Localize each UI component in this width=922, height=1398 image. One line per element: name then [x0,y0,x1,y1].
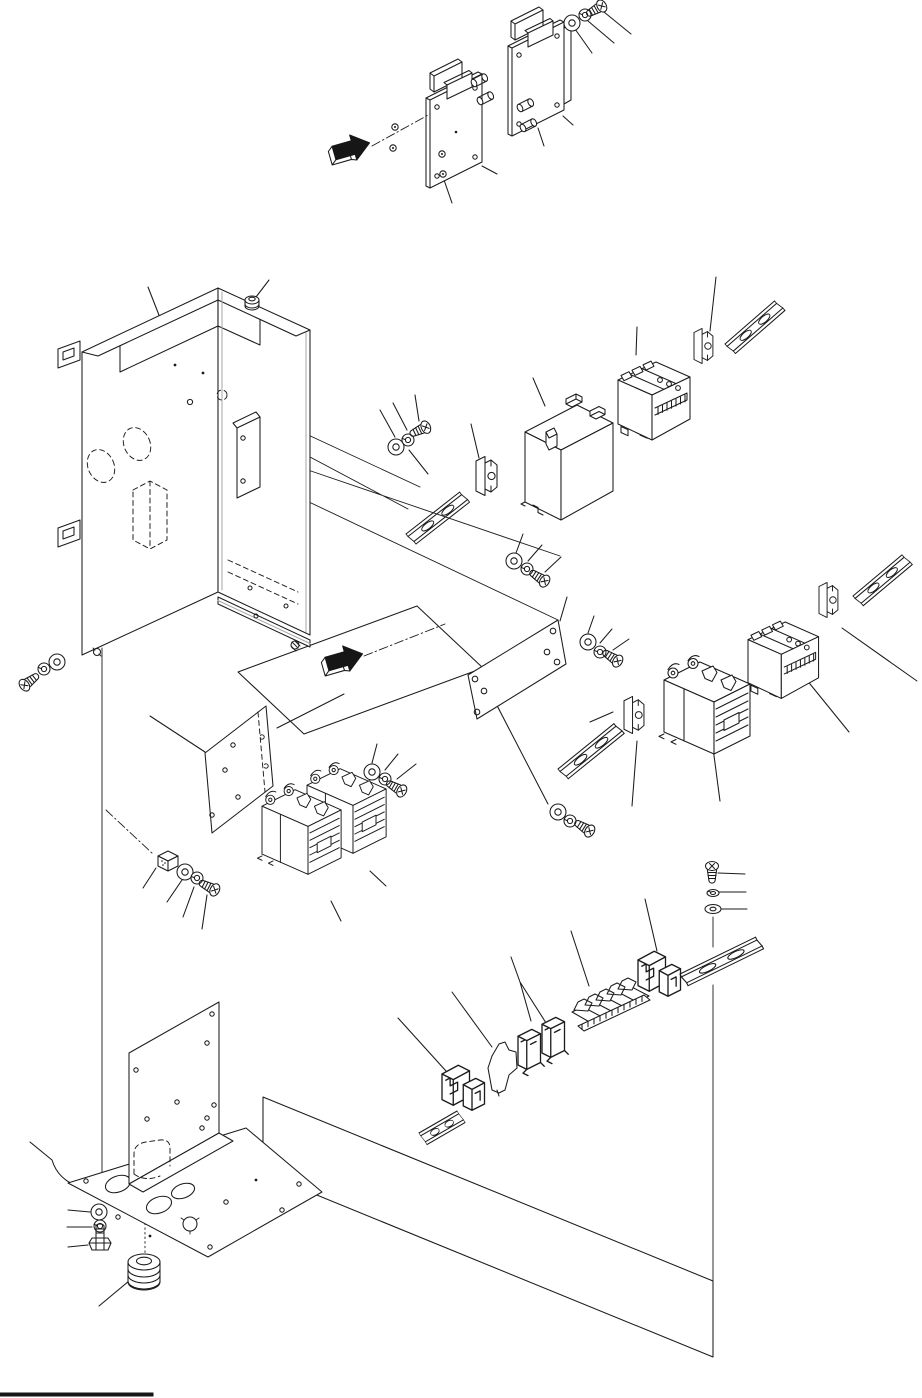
upper-middle-components: Flat washer, spring washer and screw (up… [388,300,785,589]
pcb-plate-right: Circuit board plate (right) [508,7,571,136]
fastener-set-a: Flat washer, spring washer and screw (bo… [564,0,609,31]
clamp-3: Rail end clamp (right) [819,582,838,617]
contactor-single: Magnetic contactor (right) [659,656,750,754]
din-rail-6: DIN rail (terminal, right) [680,936,764,986]
clamp-1: Rail end clamp (upper left) [476,457,497,496]
terminal-row: Screw, spring washer and flat washer (te… [419,862,764,1146]
middle-arrow: Assembly direction arrow (panel) [319,641,367,678]
anchor-left: Terminal end anchors (left) [442,1065,485,1110]
din-rail-4: DIN rail (middle) [558,723,624,780]
base-assembly: Base plate with cable holes L-shaped mou… [68,1002,322,1290]
anchor-right: Terminal end anchors (right) [638,951,681,996]
fastener-set-c: Flat washer, spring washer and screw (ce… [506,553,552,589]
center-row: Mounting plate (center) Flat washer, spr… [468,554,912,839]
plate-center: Mounting plate (center) [468,620,566,719]
transformer: Transformer block [521,394,613,520]
diagram-canvas: Mounting panel outline Rear panel outlin… [0,0,922,1398]
breaker-2: Circuit breaker (right) [748,621,819,698]
din-rail-2: DIN rail (upper right) [725,300,785,355]
parts-diagram-page: Mounting panel outline Rear panel outlin… [0,0,922,1398]
separator: Terminal separator plate [488,1042,517,1096]
flat-washer-icon [705,905,721,914]
clamp-4: Rail end clamp (middle) [624,696,644,733]
footer-rule: Footer rule [0,1393,153,1396]
din-rail-5: DIN rail (terminal, left) [419,1110,465,1145]
clamp-2: Rail end clamp (upper right) [694,328,713,363]
grommet: Rubber grommet [128,1254,160,1290]
fastener-set-h: Flat washer, spring washer and screw (cu… [177,864,222,898]
fastener-set-f: Flat washer, spring washer and screw (be… [550,804,597,839]
din-rail-1: DIN rail (upper left) [406,491,470,545]
fastener-set-d: Screw, spring washer and flat washer (fl… [17,654,65,693]
top-bushing: Cable bushing (top rim) [245,296,259,310]
enclosure: Sheet-metal box enclosure [82,288,310,656]
din-rail-3: DIN rail (right) [853,554,912,607]
rear-panel-outline: Rear panel outline [263,1097,713,1357]
contactor-pair: Magnetic contactors (pair) [257,763,386,875]
enclosure-group: Sheet-metal box enclosure Wall-mount tab… [17,288,366,693]
fastener-set-i: Screw, spring washer and flat washer (te… [705,862,721,914]
mount-tabs: Wall-mount tabs [58,341,80,547]
terminal-singles: Terminal blocks (pair) [518,1017,568,1075]
breaker-1: Circuit breaker (upper) [618,361,690,440]
fastener-set-e: Flat washer, spring washer and screw (pl… [580,634,625,669]
top-assembly: Assembly direction arrow (top) Circuit b… [326,0,609,188]
top-arrow: Assembly direction arrow (top) [326,130,374,167]
spring-washer-icon [707,890,719,897]
filter-cube: Terminal cube [158,851,178,871]
left-middle: Mounting plate (left) Terminal cube Flat… [158,706,409,898]
